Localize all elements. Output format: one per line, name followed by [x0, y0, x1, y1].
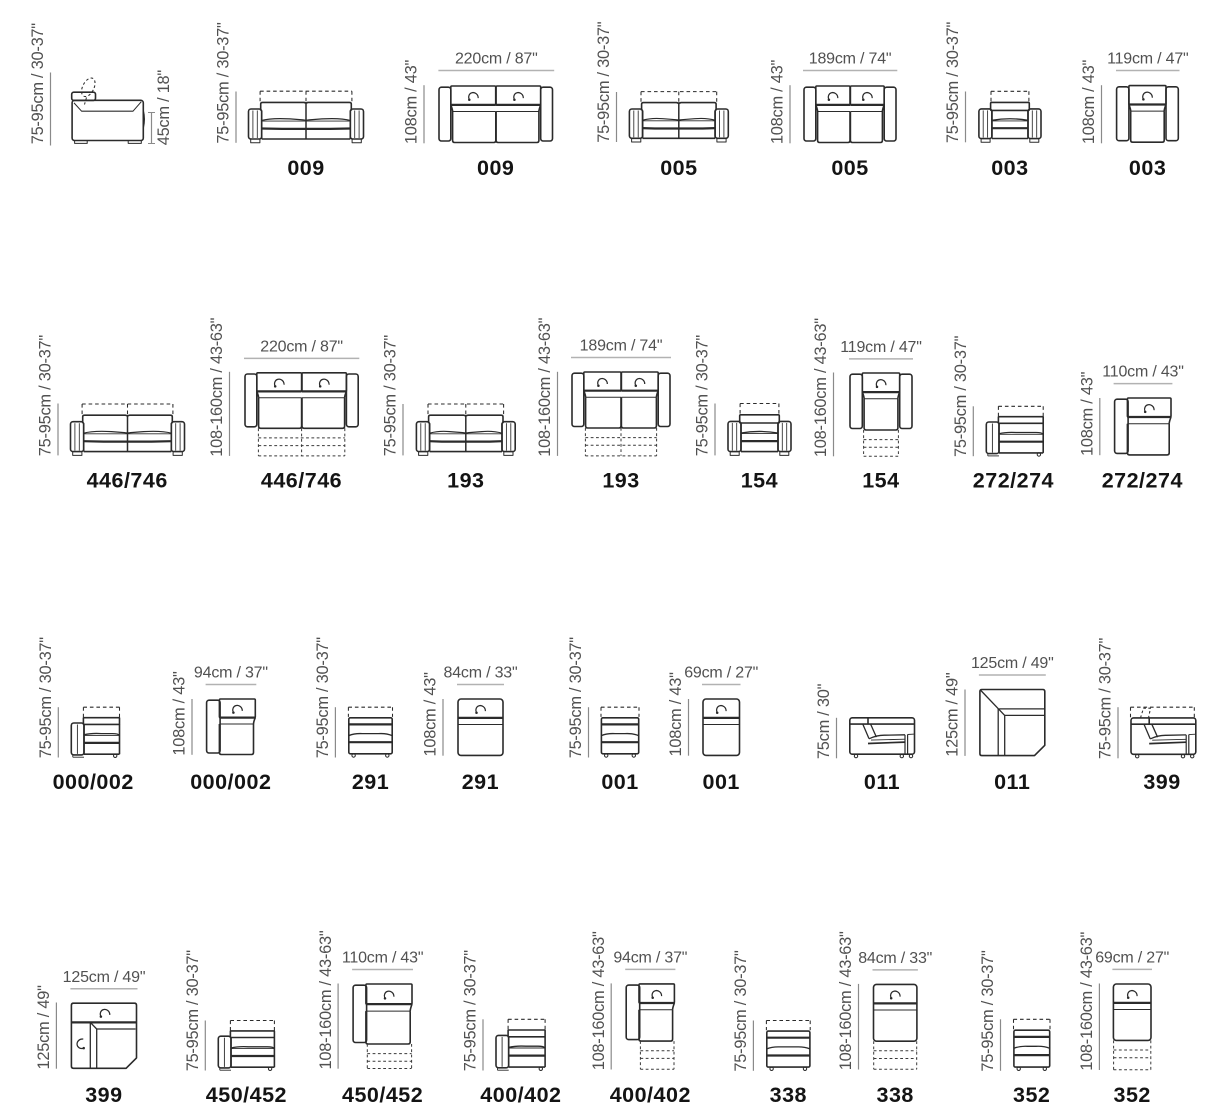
svg-text:75-95cm / 30-37": 75-95cm / 30-37" — [952, 335, 970, 457]
svg-text:75-95cm / 30-37": 75-95cm / 30-37" — [184, 950, 202, 1072]
svg-text:338: 338 — [770, 1083, 807, 1107]
svg-text:110cm / 43": 110cm / 43" — [342, 950, 423, 967]
svg-text:005: 005 — [660, 156, 697, 180]
svg-text:005: 005 — [831, 156, 868, 180]
svg-text:75-95cm / 30-37": 75-95cm / 30-37" — [694, 335, 712, 457]
svg-text:000/002: 000/002 — [190, 770, 271, 794]
svg-text:193: 193 — [602, 469, 639, 493]
svg-text:125cm / 49": 125cm / 49" — [944, 672, 962, 757]
svg-text:446/746: 446/746 — [261, 469, 342, 493]
svg-text:125cm / 49": 125cm / 49" — [63, 969, 146, 986]
svg-text:75-95cm / 30-37": 75-95cm / 30-37" — [462, 950, 480, 1072]
svg-text:338: 338 — [877, 1083, 914, 1107]
svg-text:108cm / 43": 108cm / 43" — [1080, 60, 1098, 145]
svg-text:003: 003 — [1129, 156, 1166, 180]
svg-text:108-160cm / 43-63": 108-160cm / 43-63" — [208, 317, 226, 456]
svg-text:84cm / 33": 84cm / 33" — [858, 950, 932, 967]
svg-text:108cm / 43": 108cm / 43" — [1079, 371, 1097, 456]
svg-text:352: 352 — [1114, 1083, 1151, 1107]
svg-text:94cm / 37": 94cm / 37" — [613, 949, 687, 966]
svg-text:272/274: 272/274 — [1102, 469, 1183, 493]
svg-text:450/452: 450/452 — [342, 1083, 423, 1107]
svg-text:108-160cm / 43-63": 108-160cm / 43-63" — [317, 930, 335, 1069]
svg-text:75-95cm / 30-37": 75-95cm / 30-37" — [944, 21, 962, 143]
svg-text:108cm / 43": 108cm / 43" — [769, 60, 787, 145]
svg-text:108-160cm / 43-63": 108-160cm / 43-63" — [590, 931, 608, 1070]
svg-text:75-95cm / 30-37": 75-95cm / 30-37" — [29, 23, 47, 145]
svg-text:108-160cm / 43-63": 108-160cm / 43-63" — [812, 318, 830, 457]
svg-text:75-95cm / 30-37": 75-95cm / 30-37" — [595, 21, 613, 143]
svg-text:009: 009 — [287, 156, 324, 180]
svg-text:400/402: 400/402 — [480, 1083, 561, 1107]
svg-text:450/452: 450/452 — [206, 1083, 287, 1107]
svg-text:94cm / 37": 94cm / 37" — [194, 665, 268, 682]
svg-text:75-95cm / 30-37": 75-95cm / 30-37" — [37, 637, 55, 759]
svg-text:003: 003 — [991, 156, 1028, 180]
svg-text:119cm / 47": 119cm / 47" — [840, 339, 921, 356]
svg-text:75-95cm / 30-37": 75-95cm / 30-37" — [382, 335, 400, 457]
svg-text:69cm / 27": 69cm / 27" — [684, 665, 758, 682]
svg-text:75-95cm / 30-37": 75-95cm / 30-37" — [1097, 637, 1115, 759]
svg-text:75-95cm / 30-37": 75-95cm / 30-37" — [979, 950, 997, 1072]
svg-text:75-95cm / 30-37": 75-95cm / 30-37" — [732, 950, 750, 1072]
svg-text:108-160cm / 43-63": 108-160cm / 43-63" — [837, 931, 855, 1070]
svg-text:119cm / 47": 119cm / 47" — [1107, 51, 1188, 68]
svg-text:009: 009 — [477, 156, 514, 180]
svg-text:108cm / 43": 108cm / 43" — [667, 672, 685, 757]
svg-text:110cm / 43": 110cm / 43" — [1102, 364, 1183, 381]
svg-text:000/002: 000/002 — [53, 770, 134, 794]
svg-text:220cm / 87": 220cm / 87" — [455, 51, 538, 68]
svg-text:75-95cm / 30-37": 75-95cm / 30-37" — [314, 637, 332, 759]
svg-text:125cm / 49": 125cm / 49" — [971, 655, 1054, 672]
svg-text:75-95cm / 30-37": 75-95cm / 30-37" — [37, 335, 55, 457]
svg-text:399: 399 — [1143, 770, 1180, 794]
svg-text:108-160cm / 43-63": 108-160cm / 43-63" — [1078, 931, 1096, 1070]
svg-text:400/402: 400/402 — [610, 1083, 691, 1107]
svg-text:75-95cm / 30-37": 75-95cm / 30-37" — [215, 22, 233, 144]
svg-text:154: 154 — [741, 469, 778, 493]
svg-text:75cm / 30": 75cm / 30" — [815, 683, 833, 759]
svg-text:193: 193 — [447, 469, 484, 493]
svg-text:291: 291 — [462, 770, 499, 794]
svg-text:108cm / 43": 108cm / 43" — [171, 671, 189, 756]
svg-text:011: 011 — [864, 770, 900, 794]
svg-text:001: 001 — [601, 770, 638, 794]
svg-text:125cm / 49": 125cm / 49" — [35, 985, 53, 1070]
svg-text:108-160cm / 43-63": 108-160cm / 43-63" — [536, 317, 554, 456]
svg-text:291: 291 — [352, 770, 389, 794]
svg-text:446/746: 446/746 — [87, 469, 168, 493]
svg-text:108cm / 43": 108cm / 43" — [422, 672, 440, 757]
svg-text:352: 352 — [1013, 1083, 1050, 1107]
svg-text:272/274: 272/274 — [973, 469, 1054, 493]
svg-text:75-95cm / 30-37": 75-95cm / 30-37" — [567, 637, 585, 759]
svg-text:189cm / 74": 189cm / 74" — [809, 51, 892, 68]
svg-text:154: 154 — [862, 469, 899, 493]
svg-text:220cm / 87": 220cm / 87" — [260, 338, 343, 355]
svg-text:84cm / 33": 84cm / 33" — [444, 665, 518, 682]
svg-text:45cm / 18": 45cm / 18" — [155, 70, 173, 146]
svg-text:69cm / 27": 69cm / 27" — [1095, 949, 1169, 966]
svg-text:399: 399 — [85, 1083, 122, 1107]
svg-text:189cm / 74": 189cm / 74" — [580, 338, 663, 355]
svg-text:108cm / 43": 108cm / 43" — [403, 60, 421, 145]
svg-text:011: 011 — [994, 770, 1030, 794]
svg-text:001: 001 — [703, 770, 740, 794]
